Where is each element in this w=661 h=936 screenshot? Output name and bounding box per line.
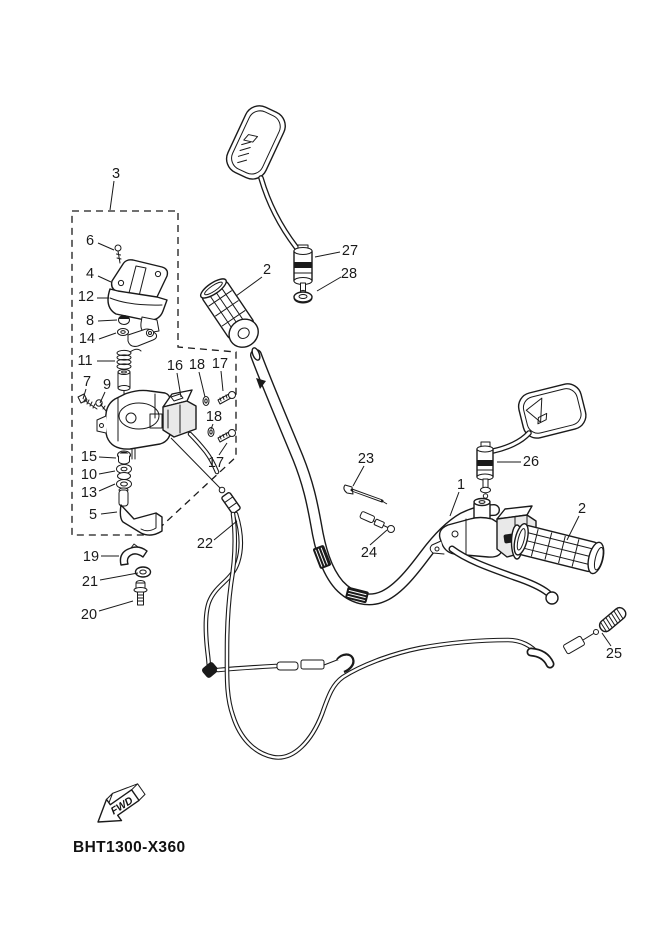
throttle-cable-22 (201, 514, 354, 679)
callout-24: 24 (361, 545, 377, 561)
fwd-arrow: FWD (98, 784, 145, 822)
clamp-hardware (120, 544, 150, 605)
screw-6 (115, 245, 121, 263)
callout-19: 19 (83, 549, 99, 565)
callout-6: 6 (86, 233, 94, 249)
grommet-8 (119, 316, 130, 325)
brake-switch-16 (163, 390, 236, 472)
cap-15 (118, 451, 131, 464)
leader-line-27 (315, 252, 340, 257)
washer-bracket-14 (118, 329, 157, 347)
parts-diagram-page: FWD BHT1300-X360 36412814117916181718171… (0, 0, 661, 936)
callout-13: 13 (81, 485, 97, 501)
spring-11 (117, 349, 141, 369)
leader-line-2 (236, 277, 262, 296)
clamp-19 (120, 544, 147, 565)
screw-17-upper (218, 392, 236, 405)
seal-stack (117, 451, 132, 489)
callout-5: 5 (89, 507, 97, 523)
callout-8: 8 (86, 313, 94, 329)
leader-line-18 (199, 372, 205, 397)
mirror-mount-26 (477, 442, 493, 498)
leader-line-13 (99, 484, 115, 491)
leader-line-9 (100, 392, 105, 403)
callout-9: 9 (103, 377, 111, 393)
leader-line-8 (98, 320, 117, 321)
washer-13 (117, 480, 132, 489)
exploded-parts-diagram: FWD BHT1300-X360 36412814117916181718171… (0, 0, 661, 936)
callout-16: 16 (167, 358, 183, 374)
callout-4: 4 (86, 266, 94, 282)
callout-28: 28 (341, 266, 357, 282)
leader-line-15 (99, 457, 116, 458)
leader-line-10 (99, 471, 115, 474)
callout-21: 21 (82, 574, 98, 590)
callout-2: 2 (578, 501, 586, 517)
throttle-housing-lower (97, 390, 171, 459)
callout-17: 17 (208, 455, 224, 471)
callout-17: 17 (212, 356, 228, 372)
screw-9 (96, 400, 107, 412)
throttle-lever-5 (119, 488, 162, 535)
spring-25 (597, 605, 628, 633)
bolt-20 (134, 581, 147, 606)
mirror-mount-27 (294, 245, 312, 294)
leader-line-25 (602, 633, 611, 646)
knurl-band-right (345, 587, 369, 604)
leader-line-6 (98, 243, 114, 250)
right-mirror (477, 381, 589, 498)
callout-20: 20 (81, 607, 97, 623)
washers-10 (117, 465, 132, 480)
callout-3: 3 (112, 166, 120, 182)
leader-line-17 (221, 371, 223, 391)
screw-7 (78, 394, 97, 409)
callout-23: 23 (358, 451, 374, 467)
washer-21 (136, 567, 151, 577)
callout-11: 11 (77, 353, 92, 369)
right-grip (511, 522, 606, 575)
leader-line-5 (101, 512, 117, 514)
callout-10: 10 (81, 467, 97, 483)
cable-end-24 (359, 511, 394, 532)
callout-2: 2 (263, 262, 271, 278)
handlebar (251, 347, 494, 604)
screw-17-lower (218, 430, 236, 443)
leader-line-21 (100, 573, 138, 580)
leader-line-24 (370, 530, 387, 545)
callout-18: 18 (189, 357, 205, 373)
diagram-code: BHT1300-X360 (73, 839, 186, 856)
leader-line-1 (450, 492, 459, 516)
leader-line-23 (353, 466, 364, 486)
leader-line-14 (99, 333, 116, 339)
callout-22: 22 (197, 536, 213, 552)
mirror-washer-28 (294, 292, 312, 303)
cable-elbow (531, 652, 550, 664)
callout-18: 18 (206, 409, 222, 425)
leader-line-17 (219, 443, 227, 455)
callout-14: 14 (79, 331, 95, 347)
callout-1: 1 (457, 477, 465, 493)
left-grip (198, 275, 264, 352)
leader-line-4 (98, 276, 111, 282)
cable-tie-23 (344, 485, 387, 504)
cable-fitting (563, 636, 585, 655)
callout-15: 15 (81, 449, 97, 465)
leader-line-3 (110, 181, 114, 210)
callout-7: 7 (83, 374, 91, 390)
callout-12: 12 (78, 289, 94, 305)
leader-line-28 (317, 277, 341, 291)
callout-27: 27 (342, 243, 358, 259)
callout-26: 26 (523, 454, 539, 470)
washer-18-upper (203, 397, 209, 406)
callout-25: 25 (606, 646, 622, 662)
leader-line-20 (99, 601, 133, 611)
